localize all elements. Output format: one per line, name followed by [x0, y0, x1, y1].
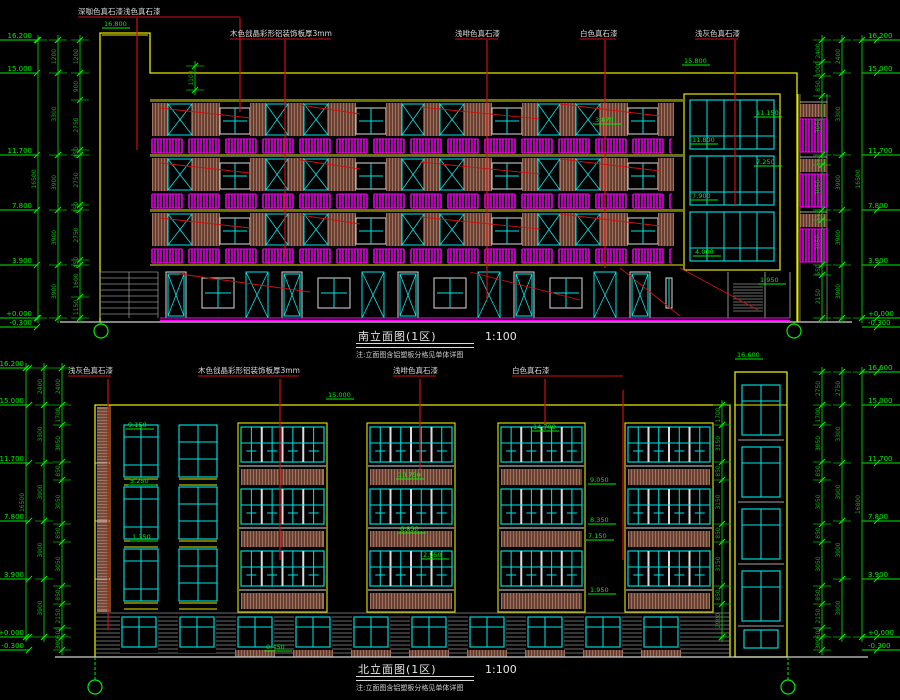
- svg-text:850: 850: [55, 527, 62, 539]
- svg-text:8.350: 8.350: [590, 516, 609, 524]
- svg-text:浅啡色真石漆: 浅啡色真石漆: [393, 365, 438, 375]
- svg-text:7.800: 7.800: [12, 202, 32, 210]
- svg-text:3050: 3050: [55, 556, 62, 571]
- svg-text:2900: 2900: [715, 613, 722, 628]
- svg-text:+0.000: +0.000: [868, 629, 894, 637]
- north-elevation-note: 注:立面图含铝塑板分格见单体详图: [356, 683, 463, 693]
- svg-text:1.350: 1.350: [132, 533, 151, 541]
- svg-text:3900: 3900: [51, 284, 58, 299]
- south-title-underline: [356, 343, 474, 348]
- svg-text:2400: 2400: [37, 379, 44, 394]
- svg-text:7.900: 7.900: [692, 192, 711, 200]
- svg-text:木色戗晶彩形铝装饰板厚3mm: 木色戗晶彩形铝装饰板厚3mm: [198, 365, 300, 375]
- south-elevation-scale: 1:100: [485, 330, 517, 343]
- south-axis-bubbles: [94, 322, 801, 338]
- svg-text:1200: 1200: [73, 49, 80, 64]
- svg-text:-0.300: -0.300: [9, 319, 32, 327]
- svg-text:650: 650: [815, 154, 822, 166]
- svg-text:16.200: 16.200: [8, 32, 33, 40]
- svg-text:3300: 3300: [835, 426, 842, 441]
- svg-text:450: 450: [73, 257, 80, 269]
- south-elevation-note: 注:立面图含铝塑板分格见单体详图: [356, 350, 463, 360]
- svg-text:16500: 16500: [19, 493, 26, 512]
- svg-text:1150: 1150: [73, 300, 80, 315]
- north-elevation-title: 北立面图(1区): [358, 661, 437, 677]
- north-elevation-scale: 1:100: [485, 663, 517, 676]
- svg-text:3050: 3050: [815, 556, 822, 571]
- svg-text:-0.300: -0.300: [868, 642, 891, 650]
- svg-text:2150: 2150: [815, 608, 822, 623]
- svg-text:3900: 3900: [835, 542, 842, 557]
- svg-text:3050: 3050: [815, 436, 822, 451]
- svg-text:2400: 2400: [55, 379, 62, 394]
- svg-text:15.000: 15.000: [8, 65, 33, 73]
- svg-text:300: 300: [55, 638, 62, 650]
- svg-text:3050: 3050: [815, 494, 822, 509]
- svg-text:15.000: 15.000: [868, 65, 893, 73]
- svg-text:3900: 3900: [835, 230, 842, 245]
- svg-text:6.850: 6.850: [400, 525, 419, 533]
- svg-text:1700: 1700: [55, 407, 62, 422]
- svg-text:1700: 1700: [715, 407, 722, 422]
- svg-text:浅灰色真石漆: 浅灰色真石漆: [68, 365, 113, 375]
- svg-text:3.900: 3.900: [12, 257, 32, 265]
- svg-text:1000: 1000: [815, 61, 822, 76]
- svg-text:900: 900: [73, 81, 80, 93]
- svg-text:2750: 2750: [73, 172, 80, 187]
- svg-text:450: 450: [73, 147, 80, 159]
- svg-text:2750: 2750: [73, 227, 80, 242]
- svg-text:7.150: 7.150: [588, 532, 607, 540]
- svg-text:3050: 3050: [55, 494, 62, 509]
- svg-text:3300: 3300: [835, 106, 842, 121]
- svg-text:16800: 16800: [855, 495, 862, 514]
- svg-text:11.700: 11.700: [0, 455, 24, 463]
- north-levels-right: 16.60015.00011.7007.8003.900+0.000-0.300: [862, 364, 900, 653]
- svg-text:浅灰色真石漆: 浅灰色真石漆: [695, 28, 740, 38]
- svg-text:3900: 3900: [51, 175, 58, 190]
- svg-text:9.050: 9.050: [590, 476, 609, 484]
- svg-text:白色真石漆: 白色真石漆: [512, 365, 550, 375]
- svg-text:15.000: 15.000: [328, 391, 351, 399]
- svg-text:3050: 3050: [815, 180, 822, 195]
- svg-text:3300: 3300: [37, 426, 44, 441]
- south-levels-right: 16.20015.00011.7007.8003.900+0.000-0.300: [862, 32, 900, 330]
- svg-text:1100: 1100: [188, 70, 195, 85]
- svg-text:+0.000: +0.000: [0, 629, 24, 637]
- svg-text:3150: 3150: [715, 494, 722, 509]
- svg-text:16.200: 16.200: [0, 360, 24, 368]
- svg-text:浅啡色真石漆: 浅啡色真石漆: [455, 28, 500, 38]
- svg-text:2.950: 2.950: [423, 551, 442, 559]
- svg-text:850: 850: [55, 589, 62, 601]
- svg-text:3900: 3900: [37, 484, 44, 499]
- svg-text:2400: 2400: [835, 49, 842, 64]
- svg-text:11.700: 11.700: [8, 147, 33, 155]
- cad-drawing-canvas: 深咖色真石漆浅色真石漆木色戗晶彩形铝装饰板厚3mm浅啡色真石漆白色真石漆浅灰色真…: [0, 0, 900, 700]
- svg-text:16500: 16500: [855, 169, 862, 188]
- svg-text:16.200: 16.200: [868, 32, 893, 40]
- svg-text:850: 850: [55, 465, 62, 477]
- svg-text:7.800: 7.800: [4, 513, 24, 521]
- svg-text:白色真石漆: 白色真石漆: [580, 28, 618, 38]
- svg-text:3050: 3050: [815, 235, 822, 250]
- svg-text:450: 450: [73, 202, 80, 214]
- svg-text:15.000: 15.000: [868, 397, 893, 405]
- svg-text:11.150: 11.150: [756, 109, 779, 117]
- svg-text:10.750: 10.750: [398, 471, 421, 479]
- svg-text:11.700: 11.700: [868, 455, 893, 463]
- svg-text:3150: 3150: [715, 436, 722, 451]
- svg-text:3.900: 3.900: [4, 571, 24, 579]
- svg-text:1.950: 1.950: [590, 586, 609, 594]
- svg-text:1600: 1600: [73, 273, 80, 288]
- svg-text:850: 850: [715, 465, 722, 477]
- svg-text:木色戗晶彩形铝装饰板厚3mm: 木色戗晶彩形铝装饰板厚3mm: [230, 28, 332, 38]
- svg-text:15.800: 15.800: [684, 57, 707, 65]
- svg-text:4.000: 4.000: [695, 248, 714, 256]
- svg-text:2750: 2750: [815, 381, 822, 396]
- svg-text:3900: 3900: [835, 284, 842, 299]
- svg-text:+0.000: +0.000: [6, 310, 32, 318]
- svg-text:-0.300: -0.300: [868, 319, 891, 327]
- svg-text:3900: 3900: [37, 600, 44, 615]
- svg-text:300: 300: [815, 638, 822, 650]
- svg-text:1200: 1200: [51, 49, 58, 64]
- svg-text:850: 850: [815, 589, 822, 601]
- svg-text:850: 850: [715, 527, 722, 539]
- svg-text:3900: 3900: [37, 542, 44, 557]
- svg-text:600: 600: [815, 627, 822, 639]
- svg-text:11.800: 11.800: [692, 136, 715, 144]
- svg-text:5.250: 5.250: [130, 477, 149, 485]
- svg-text:850: 850: [715, 589, 722, 601]
- svg-text:+0.000: +0.000: [868, 310, 894, 318]
- svg-text:3050: 3050: [55, 436, 62, 451]
- svg-text:2750: 2750: [835, 381, 842, 396]
- svg-text:2150: 2150: [815, 289, 822, 304]
- south-elevation: 深咖色真石漆浅色真石漆木色戗晶彩形铝装饰板厚3mm浅啡色真石漆白色真石漆浅灰色真…: [0, 6, 900, 338]
- north-levels-left: 16.20015.00011.7007.8003.900+0.000-0.300: [0, 360, 32, 653]
- svg-text:3900: 3900: [835, 175, 842, 190]
- svg-text:850: 850: [815, 465, 822, 477]
- svg-text:850: 850: [815, 80, 822, 92]
- svg-text:16.600: 16.600: [737, 351, 760, 359]
- svg-text:600: 600: [55, 627, 62, 639]
- svg-text:-0.300: -0.300: [1, 642, 24, 650]
- north-elevation: 浅灰色真石漆木色戗晶彩形铝装饰板厚3mm浅啡色真石漆白色真石漆240017003…: [0, 351, 900, 694]
- svg-text:16.800: 16.800: [104, 20, 127, 28]
- svg-text:16500: 16500: [31, 169, 38, 188]
- svg-text:9.150: 9.150: [128, 421, 147, 429]
- svg-text:16.600: 16.600: [868, 364, 893, 372]
- svg-text:3900: 3900: [835, 600, 842, 615]
- svg-text:1700: 1700: [815, 407, 822, 422]
- svg-text:650: 650: [815, 209, 822, 221]
- svg-text:2150: 2150: [55, 608, 62, 623]
- svg-text:3300: 3300: [51, 106, 58, 121]
- svg-text:3050: 3050: [815, 118, 822, 133]
- svg-text:15.000: 15.000: [0, 397, 24, 405]
- svg-text:1.950: 1.950: [760, 276, 779, 284]
- svg-text:850: 850: [815, 527, 822, 539]
- svg-text:0.450: 0.450: [266, 643, 285, 651]
- svg-text:3900: 3900: [835, 484, 842, 499]
- svg-text:深咖色真石漆浅色真石漆: 深咖色真石漆浅色真石漆: [78, 6, 161, 16]
- svg-text:2750: 2750: [73, 117, 80, 132]
- south-elevation-title: 南立面图(1区): [358, 328, 437, 344]
- svg-text:3.870: 3.870: [595, 116, 614, 124]
- svg-text:3150: 3150: [715, 556, 722, 571]
- svg-text:7.250: 7.250: [756, 158, 775, 166]
- svg-text:650: 650: [815, 264, 822, 276]
- north-title-underline: [356, 676, 474, 681]
- svg-text:11.700: 11.700: [868, 147, 893, 155]
- svg-text:3900: 3900: [51, 230, 58, 245]
- svg-text:2400: 2400: [815, 43, 822, 58]
- svg-text:14.700: 14.700: [533, 423, 556, 431]
